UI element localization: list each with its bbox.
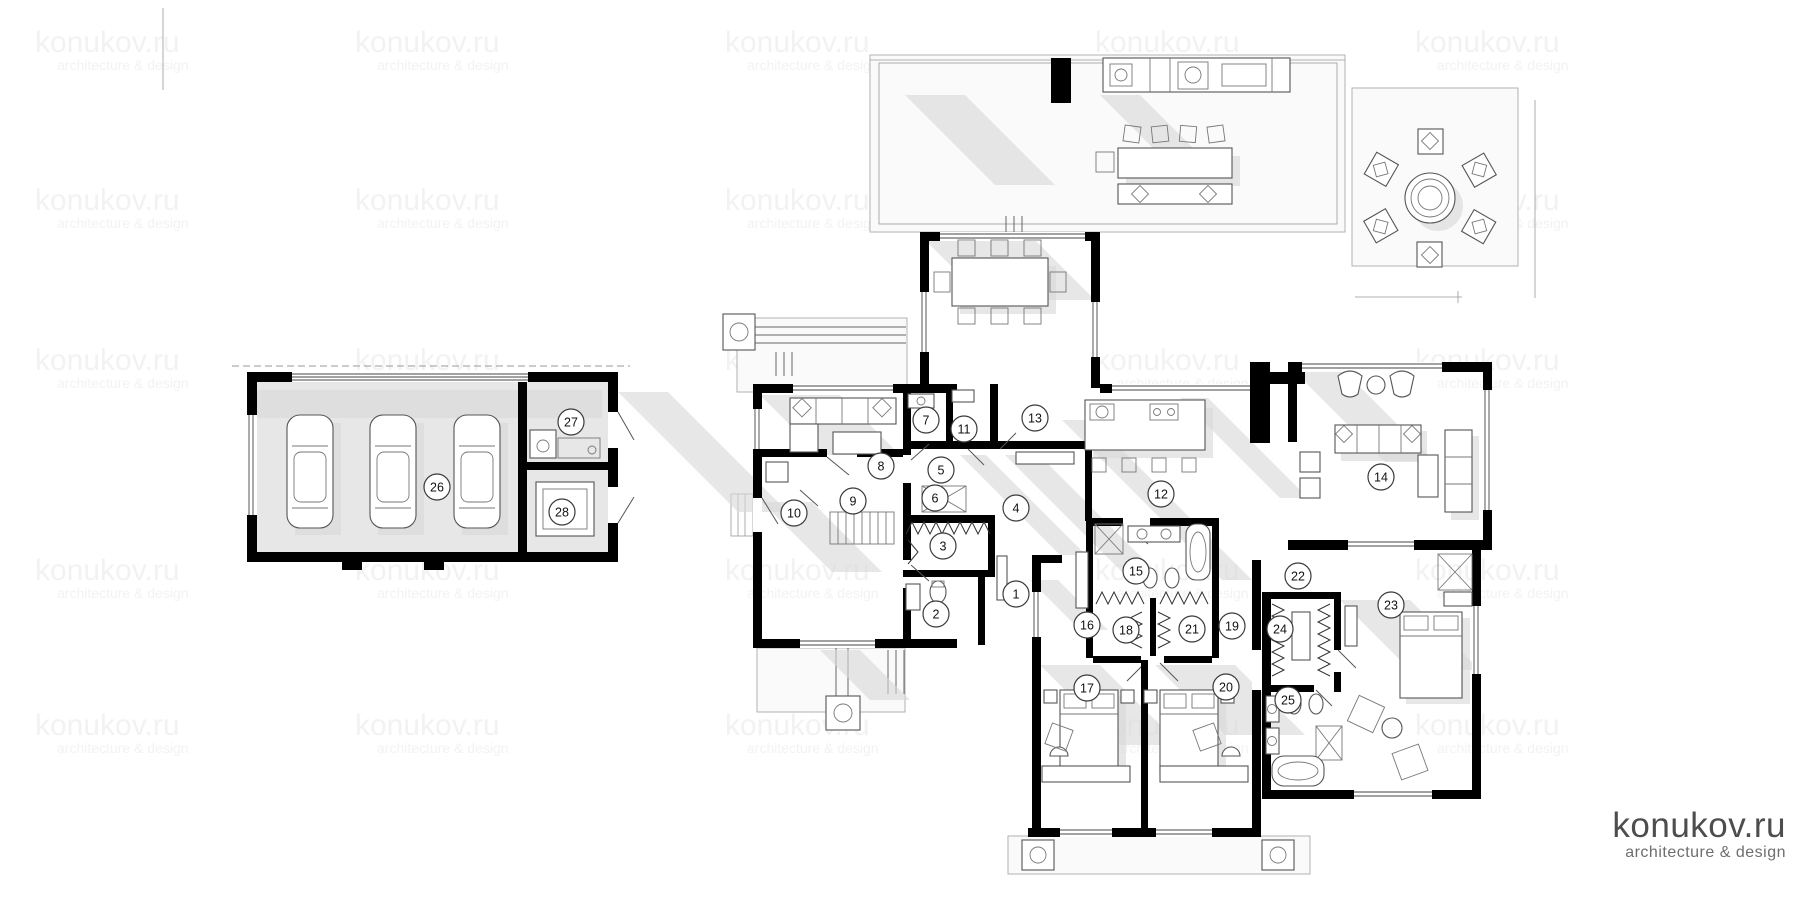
room-number-badge: 6 [922, 485, 948, 511]
svg-text:22: 22 [1291, 570, 1305, 584]
svg-text:architecture & design: architecture & design [747, 740, 879, 756]
watermark: konukov.ruarchitecture & design [355, 26, 509, 73]
room-number-badge: 2 [923, 601, 949, 627]
svg-text:konukov.ru: konukov.ru [355, 709, 500, 742]
side-table [1367, 376, 1385, 394]
svg-text:7: 7 [923, 414, 930, 428]
svg-text:architecture & design: architecture & design [377, 57, 509, 73]
armchair [1338, 371, 1362, 397]
bench [1118, 184, 1232, 204]
svg-text:23: 23 [1384, 599, 1398, 613]
watermark: konukov.ruarchitecture & design [35, 184, 189, 231]
coffee-table [833, 432, 881, 454]
armchair [1347, 695, 1384, 732]
room-number-badge: 23 [1378, 592, 1404, 618]
svg-text:konukov.ru: konukov.ru [1095, 344, 1240, 377]
watermark: konukov.ruarchitecture & design [1415, 709, 1569, 756]
armchair [1392, 744, 1428, 780]
bed [1400, 612, 1462, 698]
svg-text:konukov.ru: konukov.ru [1415, 554, 1560, 587]
svg-text:konukov.ru: konukov.ru [725, 184, 870, 217]
svg-text:konukov.ru: konukov.ru [35, 554, 180, 587]
svg-text:architecture & design: architecture & design [57, 375, 189, 391]
svg-text:6: 6 [932, 492, 939, 506]
floor-plan-svg: konukov.ruarchitecture & designkonukov.r… [0, 0, 1800, 900]
wardrobe [1345, 606, 1357, 646]
room-number-badge: 21 [1179, 616, 1205, 642]
svg-text:architecture & design: architecture & design [57, 740, 189, 756]
armchair [1390, 371, 1414, 397]
watermark: konukov.ruarchitecture & design [355, 709, 509, 756]
room-number-badge: 14 [1368, 464, 1394, 490]
svg-text:architecture & design: architecture & design [1437, 740, 1569, 756]
pergola-column [826, 696, 860, 730]
room-number-badge: 15 [1123, 558, 1149, 584]
svg-text:architecture & design: architecture & design [1437, 57, 1569, 73]
svg-text:konukov.ru: konukov.ru [355, 184, 500, 217]
svg-text:17: 17 [1080, 682, 1094, 696]
pouf [1300, 478, 1320, 498]
room-number-badge: 19 [1219, 613, 1245, 639]
coffee-table [1418, 455, 1438, 497]
svg-text:12: 12 [1154, 488, 1168, 502]
bed [1160, 690, 1218, 774]
svg-text:konukov.ru: konukov.ru [35, 344, 180, 377]
svg-text:architecture & design: architecture & design [377, 740, 509, 756]
garage-block [247, 372, 634, 570]
dresser [1444, 592, 1472, 606]
bidet [1309, 694, 1323, 714]
svg-text:24: 24 [1273, 623, 1287, 637]
room-number-badge: 17 [1074, 675, 1100, 701]
room-number-badge: 25 [1275, 687, 1301, 713]
svg-text:9: 9 [850, 495, 857, 509]
bidet [1165, 568, 1179, 588]
round-table [1382, 718, 1402, 738]
brand-logo-name: konukov.ru [1612, 808, 1786, 845]
room-number-badge: 24 [1267, 616, 1293, 642]
svg-text:26: 26 [430, 481, 444, 495]
watermark: konukov.ruarchitecture & design [35, 344, 189, 391]
svg-text:architecture & design: architecture & design [1437, 375, 1569, 391]
pergola-column [723, 314, 755, 350]
svg-text:architecture & design: architecture & design [57, 57, 189, 73]
svg-text:14: 14 [1374, 471, 1388, 485]
svg-text:1: 1 [1013, 588, 1020, 602]
brand-logo: konukov.ru architecture & design [1612, 808, 1786, 862]
svg-text:architecture & design: architecture & design [747, 585, 879, 601]
watermark: konukov.ruarchitecture & design [725, 26, 879, 73]
svg-text:konukov.ru: konukov.ru [35, 26, 180, 59]
bedroom-17-furniture [1042, 690, 1134, 782]
sink [906, 584, 920, 610]
car [370, 415, 424, 535]
svg-text:architecture & design: architecture & design [377, 585, 509, 601]
floor-plan-image: konukov.ruarchitecture & designkonukov.r… [0, 0, 1800, 900]
svg-text:konukov.ru: konukov.ru [725, 26, 870, 59]
svg-text:27: 27 [564, 416, 578, 430]
svg-text:28: 28 [555, 506, 569, 520]
room-number-badge: 13 [1022, 405, 1048, 431]
room-number-badge: 18 [1113, 617, 1139, 643]
room-number-badge: 5 [928, 457, 954, 483]
svg-text:konukov.ru: konukov.ru [1415, 26, 1560, 59]
svg-text:20: 20 [1219, 681, 1233, 695]
room-number-badge: 27 [558, 409, 584, 435]
bed [1060, 690, 1118, 774]
pouf [1300, 452, 1320, 472]
svg-text:3: 3 [940, 540, 947, 554]
room-number-badge: 22 [1285, 563, 1311, 589]
svg-text:konukov.ru: konukov.ru [1095, 26, 1240, 59]
room-number-badge: 3 [930, 533, 956, 559]
svg-text:8: 8 [878, 460, 885, 474]
room-number-badge: 4 [1003, 495, 1029, 521]
desk [1042, 766, 1130, 782]
svg-text:konukov.ru: konukov.ru [35, 184, 180, 217]
svg-text:architecture & design: architecture & design [377, 215, 509, 231]
svg-text:architecture & design: architecture & design [57, 215, 189, 231]
bathtub [1272, 756, 1324, 786]
svg-text:13: 13 [1028, 412, 1042, 426]
svg-text:18: 18 [1119, 624, 1133, 638]
watermark: konukov.ruarchitecture & design [35, 709, 189, 756]
svg-text:konukov.ru: konukov.ru [35, 709, 180, 742]
watermark: konukov.ruarchitecture & design [1415, 26, 1569, 73]
svg-text:11: 11 [958, 423, 971, 437]
svg-text:5: 5 [938, 464, 945, 478]
svg-text:konukov.ru: konukov.ru [355, 26, 500, 59]
car [454, 415, 508, 535]
room-number-badge: 1 [1003, 581, 1029, 607]
desk [1160, 766, 1248, 782]
svg-text:architecture & design: architecture & design [747, 215, 879, 231]
room-number-badge: 11 [951, 416, 977, 442]
svg-text:21: 21 [1185, 623, 1199, 637]
room-number-badge: 8 [868, 453, 894, 479]
porch-column [1262, 840, 1294, 870]
watermark: konukov.ruarchitecture & design [355, 184, 509, 231]
bench [1016, 452, 1074, 464]
svg-text:architecture & design: architecture & design [57, 585, 189, 601]
room-number-badge: 7 [913, 407, 939, 433]
brand-logo-tagline: architecture & design [1612, 845, 1786, 862]
car [287, 415, 341, 535]
room-number-badge: 16 [1074, 612, 1100, 638]
closet-island [1292, 612, 1310, 660]
watermark: konukov.ruarchitecture & design [35, 26, 189, 73]
watermark: konukov.ruarchitecture & design [1095, 344, 1249, 391]
svg-text:2: 2 [933, 608, 940, 622]
svg-text:25: 25 [1281, 694, 1295, 708]
porch-column [1022, 840, 1054, 870]
svg-text:architecture & design: architecture & design [1117, 585, 1249, 601]
room-number-badge: 10 [781, 500, 807, 526]
svg-text:4: 4 [1013, 502, 1020, 516]
svg-text:architecture & design: architecture & design [747, 57, 879, 73]
watermark: konukov.ruarchitecture & design [725, 184, 879, 231]
svg-text:15: 15 [1129, 565, 1143, 579]
outdoor-kitchen [1103, 58, 1290, 92]
room-number-badge: 20 [1213, 674, 1239, 700]
svg-text:10: 10 [787, 507, 801, 521]
svg-text:19: 19 [1225, 620, 1239, 634]
room-number-badge: 9 [840, 488, 866, 514]
svg-text:16: 16 [1080, 619, 1094, 633]
washer [530, 430, 556, 458]
room-number-badge: 26 [424, 474, 450, 500]
watermark: konukov.ruarchitecture & design [35, 554, 189, 601]
room-number-badge: 28 [549, 499, 575, 525]
svg-text:konukov.ru: konukov.ru [1415, 709, 1560, 742]
room-number-badge: 12 [1148, 481, 1174, 507]
